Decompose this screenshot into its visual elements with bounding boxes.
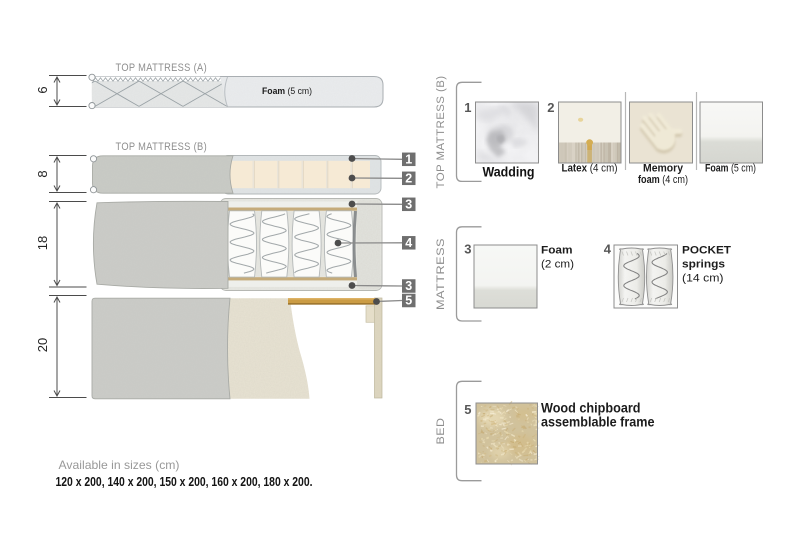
svg-text:TOP MATTRESS (A): TOP MATTRESS (A) <box>116 62 208 74</box>
svg-text:4: 4 <box>604 242 612 257</box>
svg-text:Foam (5 cm): Foam (5 cm) <box>262 86 312 96</box>
svg-text:18: 18 <box>35 236 50 250</box>
svg-text:BED: BED <box>435 418 447 445</box>
svg-text:6: 6 <box>35 86 50 93</box>
svg-text:TOP MATTRESS (B): TOP MATTRESS (B) <box>116 141 208 153</box>
svg-text:1: 1 <box>464 100 471 115</box>
svg-text:2: 2 <box>547 100 554 115</box>
svg-text:Foam: Foam <box>541 245 573 257</box>
svg-text:3: 3 <box>464 242 471 257</box>
svg-text:(2 cm): (2 cm) <box>541 259 574 271</box>
svg-text:Available in sizes (cm): Available in sizes (cm) <box>59 458 180 472</box>
svg-text:3: 3 <box>405 279 412 293</box>
svg-text:5: 5 <box>405 294 412 308</box>
svg-text:Wadding: Wadding <box>483 164 535 180</box>
svg-text:Memory: Memory <box>643 163 684 175</box>
svg-text:20: 20 <box>35 338 50 352</box>
svg-text:TOP MATTRESS (B): TOP MATTRESS (B) <box>435 76 447 189</box>
svg-text:120 x 200, 140 x 200, 150 x 20: 120 x 200, 140 x 200, 150 x 200, 160 x 2… <box>56 475 313 489</box>
svg-text:5: 5 <box>464 402 471 417</box>
svg-text:4: 4 <box>405 236 412 250</box>
svg-text:(14 cm): (14 cm) <box>682 272 724 284</box>
svg-text:MATTRESS: MATTRESS <box>435 238 447 310</box>
svg-text:Latex (4 cm): Latex (4 cm) <box>562 163 618 175</box>
svg-text:Foam (5 cm): Foam (5 cm) <box>705 163 756 175</box>
svg-text:2: 2 <box>405 171 412 185</box>
svg-text:1: 1 <box>405 152 412 166</box>
svg-text:POCKET: POCKET <box>682 245 731 257</box>
svg-text:springs: springs <box>682 258 725 270</box>
svg-text:foam (4 cm): foam (4 cm) <box>638 174 688 186</box>
svg-text:8: 8 <box>35 170 50 177</box>
svg-text:3: 3 <box>405 197 412 211</box>
svg-text:assemblable frame: assemblable frame <box>541 414 655 430</box>
